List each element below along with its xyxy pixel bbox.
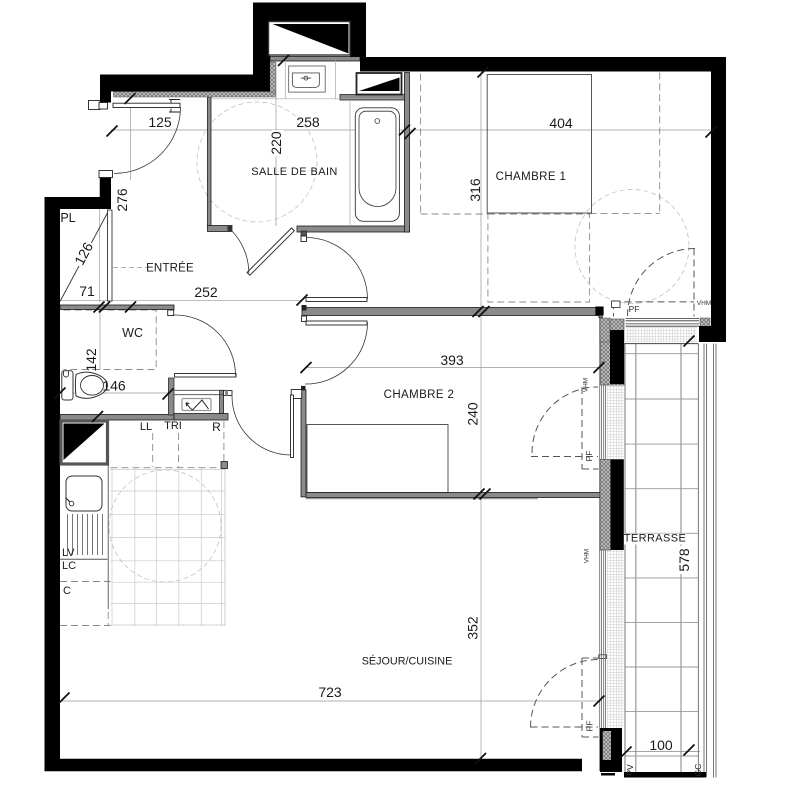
svg-text:142: 142 <box>83 348 99 372</box>
svg-text:146: 146 <box>102 378 126 394</box>
svg-text:WC: WC <box>122 326 143 340</box>
svg-text:VHM: VHM <box>697 300 711 307</box>
svg-text:LC: LC <box>62 560 76 572</box>
svg-text:GC: GC <box>693 764 703 777</box>
svg-text:R: R <box>212 420 221 434</box>
svg-text:125: 125 <box>148 114 172 130</box>
svg-text:PL: PL <box>60 211 75 225</box>
svg-text:723: 723 <box>318 684 342 700</box>
svg-text:276: 276 <box>114 188 130 212</box>
svg-text:71: 71 <box>79 283 95 299</box>
svg-text:LV: LV <box>62 547 75 559</box>
svg-text:SÉJOUR/CUISINE: SÉJOUR/CUISINE <box>362 655 453 668</box>
svg-text:PF: PF <box>585 721 595 732</box>
svg-text:PF: PF <box>629 304 640 314</box>
svg-text:252: 252 <box>194 284 218 300</box>
svg-text:CHAMBRE 1: CHAMBRE 1 <box>496 171 567 183</box>
svg-text:258: 258 <box>296 114 320 130</box>
svg-text:PF: PF <box>584 451 594 462</box>
svg-text:TRI: TRI <box>164 420 182 432</box>
svg-text:393: 393 <box>440 352 464 368</box>
svg-text:404: 404 <box>549 115 573 131</box>
svg-text:352: 352 <box>465 616 481 640</box>
svg-text:SALLE DE BAIN: SALLE DE BAIN <box>251 166 338 178</box>
svg-text:VHM: VHM <box>583 378 590 392</box>
svg-text:VHM: VHM <box>584 549 591 563</box>
svg-text:TERRASSE: TERRASSE <box>624 533 687 545</box>
svg-text:PV: PV <box>625 764 635 776</box>
svg-text:220: 220 <box>268 131 284 155</box>
svg-text:578: 578 <box>676 548 692 572</box>
svg-text:CHAMBRE 2: CHAMBRE 2 <box>384 389 455 401</box>
svg-text:C: C <box>63 585 71 597</box>
svg-text:ENTRÉE: ENTRÉE <box>146 262 194 275</box>
svg-text:LL: LL <box>140 421 152 433</box>
svg-text:240: 240 <box>465 402 481 426</box>
svg-text:100: 100 <box>649 737 673 753</box>
svg-text:316: 316 <box>467 178 483 202</box>
